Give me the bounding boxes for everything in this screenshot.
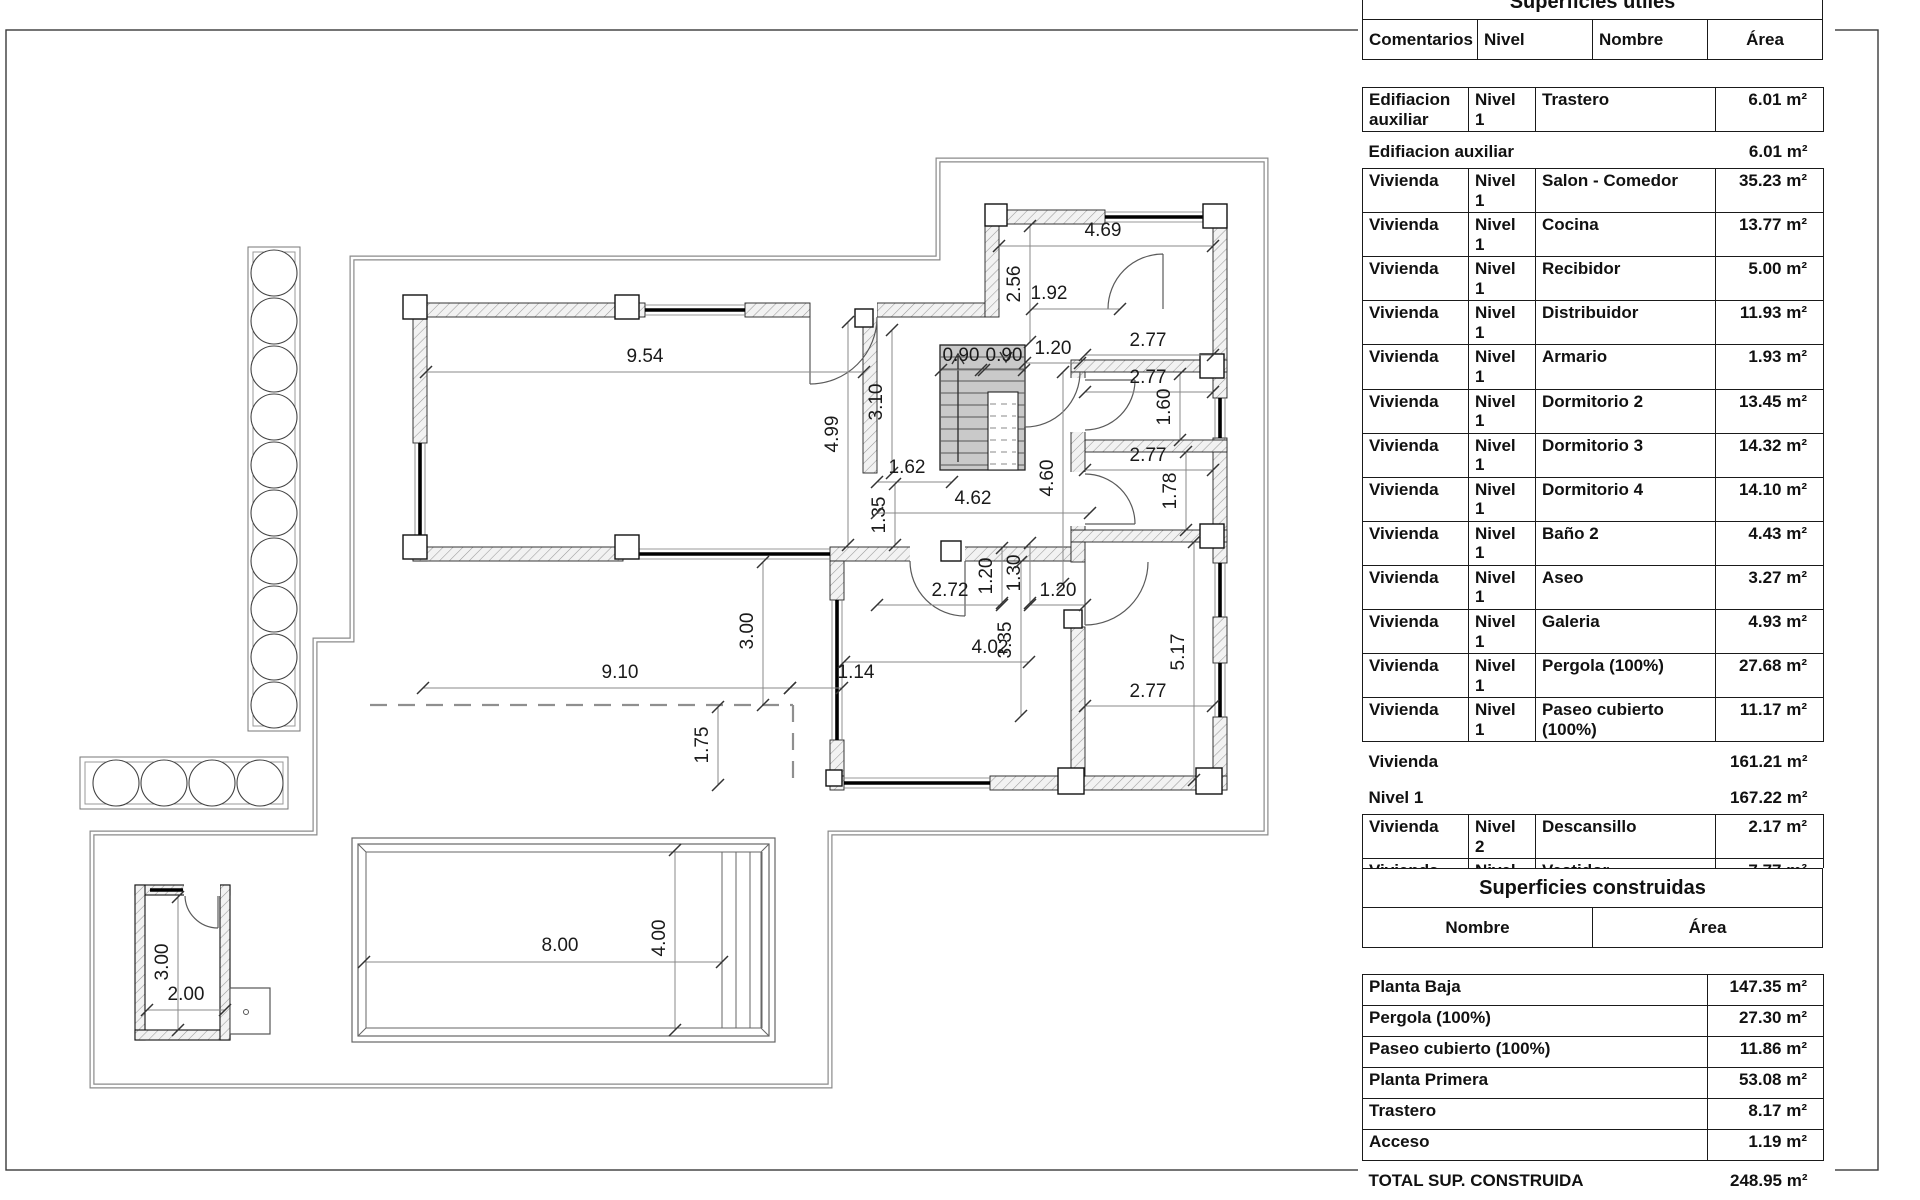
tree xyxy=(189,760,235,806)
table-cell: Dormitorio 4 xyxy=(1536,477,1716,521)
dimension-label: 4.69 xyxy=(1085,220,1122,241)
structural-post xyxy=(615,295,639,319)
table-cell: 2.17 m² xyxy=(1716,815,1824,859)
dimension-label: 3.10 xyxy=(866,384,887,421)
table-cell: 53.08 m² xyxy=(1708,1068,1824,1099)
superficies-utiles-header: Superficies utiles Comentarios Nivel Nom… xyxy=(1362,0,1823,60)
table-cell: Vivienda xyxy=(1363,521,1469,565)
table-row: ViviendaNivel 1Recibidor5.00 m² xyxy=(1363,257,1824,301)
dimension-annotations: 9.544.692.561.920.900.901.203.104.991.62… xyxy=(141,220,1219,1036)
table-cell: Dormitorio 3 xyxy=(1536,433,1716,477)
table-cell: 14.32 m² xyxy=(1716,433,1824,477)
table-cell: Descansillo xyxy=(1536,815,1716,859)
structural-post xyxy=(1058,768,1084,794)
col-header-nombre: Nombre xyxy=(1363,908,1593,948)
door-arc xyxy=(1085,474,1135,524)
table-row: Pergola (100%)27.30 m² xyxy=(1363,1006,1824,1037)
table-cell: 14.10 m² xyxy=(1716,477,1824,521)
dimension-label: 9.10 xyxy=(602,662,639,683)
superficies-construidas-header: Superficies construidas Nombre Área xyxy=(1362,868,1823,948)
table-cell: Vivienda xyxy=(1363,213,1469,257)
table-row: ViviendaNivel 1Baño 24.43 m² xyxy=(1363,521,1824,565)
door-opening xyxy=(1070,472,1086,526)
wall xyxy=(413,547,623,561)
table-row: Vivienda161.21 m² xyxy=(1363,742,1824,779)
structural-post xyxy=(1200,524,1224,548)
table-cell: Planta Baja xyxy=(1363,975,1708,1006)
tree xyxy=(93,760,139,806)
table-cell: 13.45 m² xyxy=(1716,389,1824,433)
dimension-label: 1.75 xyxy=(692,727,713,764)
table-cell: Vivienda xyxy=(1363,742,1716,779)
table-cell: Vivienda xyxy=(1363,389,1469,433)
wall xyxy=(413,303,645,317)
table-cell: Dormitorio 2 xyxy=(1536,389,1716,433)
table-cell: 8.17 m² xyxy=(1708,1099,1824,1130)
table-cell: Acceso xyxy=(1363,1130,1708,1161)
table-cell: Vivienda xyxy=(1363,698,1469,742)
dimension-label: 5.17 xyxy=(1168,634,1189,671)
table-cell: Nivel 1 xyxy=(1469,610,1536,654)
structural-post xyxy=(1200,354,1224,378)
dimension-label: 8.00 xyxy=(542,935,579,956)
tree xyxy=(251,634,297,680)
door-arc xyxy=(1108,254,1163,309)
table-cell: Nivel 1 xyxy=(1469,477,1536,521)
table-cell: 248.95 m² xyxy=(1708,1161,1824,1198)
dimension-label: 1.60 xyxy=(1154,389,1175,426)
table-row: Paseo cubierto (100%)11.86 m² xyxy=(1363,1037,1824,1068)
table-row: ViviendaNivel 1Pergola (100%)27.68 m² xyxy=(1363,654,1824,698)
table-row: ViviendaNivel 1Galeria4.93 m² xyxy=(1363,610,1824,654)
floor-plan-sheet: 9.544.692.561.920.900.901.203.104.991.62… xyxy=(0,0,1920,1200)
superficies-construidas-body: Planta Baja147.35 m²Pergola (100%)27.30 … xyxy=(1362,974,1824,1197)
table-cell: Paseo cubierto (100%) xyxy=(1536,698,1716,742)
table-cell: Vivienda xyxy=(1363,257,1469,301)
structural-post xyxy=(1196,768,1222,794)
table-cell: 5.00 m² xyxy=(1716,257,1824,301)
table-cell: Nivel 1 xyxy=(1469,213,1536,257)
table-cell: Nivel 1 xyxy=(1469,565,1536,609)
table-cell: 1.93 m² xyxy=(1716,345,1824,389)
table-cell: Aseo xyxy=(1536,565,1716,609)
table-cell: Vivienda xyxy=(1363,433,1469,477)
dimension-label: 3.00 xyxy=(152,944,173,981)
table-cell: Vivienda xyxy=(1363,345,1469,389)
table-row: ViviendaNivel 1Armario1.93 m² xyxy=(1363,345,1824,389)
table-cell: 167.22 m² xyxy=(1716,778,1824,815)
tree xyxy=(251,538,297,584)
dimension-label: 2.00 xyxy=(168,984,205,1005)
col-header-nombre: Nombre xyxy=(1593,20,1708,60)
col-header-area: Área xyxy=(1593,908,1823,948)
storage-wall xyxy=(220,885,230,1040)
table-cell: Trastero xyxy=(1363,1099,1708,1130)
col-header-comentarios: Comentarios xyxy=(1363,20,1478,60)
table-cell: Vivienda xyxy=(1363,565,1469,609)
wall xyxy=(1071,627,1085,776)
table-cell: Nivel 1 xyxy=(1469,169,1536,213)
table-cell: Armario xyxy=(1536,345,1716,389)
structural-post xyxy=(855,309,873,327)
dimension-label: 3.00 xyxy=(737,613,758,650)
table-row: ViviendaNivel 1Dormitorio 414.10 m² xyxy=(1363,477,1824,521)
dimension-label: 2.72 xyxy=(932,580,969,601)
table-cell: Galeria xyxy=(1536,610,1716,654)
dimension-label: 2.56 xyxy=(1004,266,1025,303)
terrace-dashed-outline xyxy=(370,705,793,786)
table-cell: 11.93 m² xyxy=(1716,301,1824,345)
table-cell: 11.17 m² xyxy=(1716,698,1824,742)
table-cell: TOTAL SUP. CONSTRUIDA xyxy=(1363,1161,1708,1198)
table-cell: Cocina xyxy=(1536,213,1716,257)
table-row: ViviendaNivel 1Salon - Comedor35.23 m² xyxy=(1363,169,1824,213)
hedge-vertical xyxy=(248,247,300,731)
wall xyxy=(745,303,810,317)
table-cell: 3.27 m² xyxy=(1716,565,1824,609)
door-arc xyxy=(1085,380,1135,430)
table-title: Superficies construidas xyxy=(1363,869,1823,908)
table-cell: Nivel 1 xyxy=(1469,389,1536,433)
dimension-label: 2.77 xyxy=(1130,330,1167,351)
tree xyxy=(251,442,297,488)
table-cell: 4.93 m² xyxy=(1716,610,1824,654)
dimension-label: 2.77 xyxy=(1130,445,1167,466)
pool-steps xyxy=(722,852,762,1028)
table-row: Nivel 1167.22 m² xyxy=(1363,778,1824,815)
table-cell: Recibidor xyxy=(1536,257,1716,301)
table-cell: 27.68 m² xyxy=(1716,654,1824,698)
table-cell: Vivienda xyxy=(1363,610,1469,654)
table-cell: Nivel 1 xyxy=(1469,698,1536,742)
dimension-label: 2.77 xyxy=(1130,681,1167,702)
table-cell: 6.01 m² xyxy=(1716,132,1824,169)
table-cell: Planta Primera xyxy=(1363,1068,1708,1099)
dimension-label: 9.54 xyxy=(627,346,664,367)
structural-post xyxy=(985,204,1007,226)
col-header-area: Área xyxy=(1708,20,1823,60)
access-box xyxy=(230,988,270,1034)
dimension-label: 4.00 xyxy=(649,920,670,957)
table-cell: Vivienda xyxy=(1363,815,1469,859)
table-cell: 27.30 m² xyxy=(1708,1006,1824,1037)
table-cell: Nivel 1 xyxy=(1363,778,1716,815)
table-title: Superficies utiles xyxy=(1363,0,1823,20)
table-row: Edifiacion auxiliarNivel 1Trastero6.01 m… xyxy=(1363,88,1824,132)
tree xyxy=(237,760,283,806)
dimension-label: 1.14 xyxy=(838,662,875,683)
wall xyxy=(1213,617,1227,663)
table-cell: Nivel 1 xyxy=(1469,433,1536,477)
hedge-horizontal xyxy=(80,757,288,809)
table-row: ViviendaNivel 2Descansillo2.17 m² xyxy=(1363,815,1824,859)
table-cell: 4.43 m² xyxy=(1716,521,1824,565)
table-cell: Salon - Comedor xyxy=(1536,169,1716,213)
table-cell: 161.21 m² xyxy=(1716,742,1824,779)
structural-post xyxy=(1064,610,1082,628)
table-title-row: Superficies construidas xyxy=(1363,869,1823,908)
dimension-label: 1.78 xyxy=(1160,473,1181,510)
tree xyxy=(251,346,297,392)
storage-wall xyxy=(135,1030,230,1040)
table-cell: Nivel 1 xyxy=(1469,257,1536,301)
structural-post xyxy=(403,295,427,319)
table-row: ViviendaNivel 1Distribuidor11.93 m² xyxy=(1363,301,1824,345)
table-row: Planta Baja147.35 m² xyxy=(1363,975,1824,1006)
table-cell: Nivel 1 xyxy=(1469,301,1536,345)
table-row: TOTAL SUP. CONSTRUIDA248.95 m² xyxy=(1363,1161,1824,1198)
table-row: Planta Primera53.08 m² xyxy=(1363,1068,1824,1099)
table-cell: 147.35 m² xyxy=(1708,975,1824,1006)
table-cell: Trastero xyxy=(1536,88,1716,132)
table-title-row: Superficies utiles xyxy=(1363,0,1823,20)
tree xyxy=(141,760,187,806)
table-header-row: Comentarios Nivel Nombre Área xyxy=(1363,20,1823,60)
tree xyxy=(251,586,297,632)
storage-wall xyxy=(135,885,145,1040)
table-cell: Nivel 1 xyxy=(1469,654,1536,698)
dimension-label: 1.20 xyxy=(976,558,997,595)
tree xyxy=(251,490,297,536)
door-arc xyxy=(185,895,218,928)
table-cell: Vivienda xyxy=(1363,654,1469,698)
table-row: ViviendaNivel 1Cocina13.77 m² xyxy=(1363,213,1824,257)
table-cell: Edifiacion auxiliar xyxy=(1363,88,1469,132)
structural-post xyxy=(941,541,961,561)
dimension-label: 2.77 xyxy=(1130,367,1167,388)
table-cell: 1.19 m² xyxy=(1708,1130,1824,1161)
structural-post xyxy=(403,535,427,559)
table-cell: Edifiacion auxiliar xyxy=(1363,132,1716,169)
wall xyxy=(1071,542,1085,562)
table-cell: Nivel 1 xyxy=(1469,345,1536,389)
table-cell: 13.77 m² xyxy=(1716,213,1824,257)
wall xyxy=(985,224,999,317)
table-header-row: Nombre Área xyxy=(1363,908,1823,948)
table-cell: Nivel 2 xyxy=(1469,815,1536,859)
dimension-label: 1.62 xyxy=(889,457,926,478)
table-row: ViviendaNivel 1Aseo3.27 m² xyxy=(1363,565,1824,609)
table-cell: 11.86 m² xyxy=(1708,1037,1824,1068)
tree xyxy=(251,682,297,728)
table-cell: Baño 2 xyxy=(1536,521,1716,565)
dimension-label: 1.92 xyxy=(1031,283,1068,304)
table-cell: Nivel 1 xyxy=(1469,521,1536,565)
dimension-label: 0.90 xyxy=(943,345,980,366)
table-row: ViviendaNivel 1Dormitorio 213.45 m² xyxy=(1363,389,1824,433)
dimension-label: 1.20 xyxy=(1040,580,1077,601)
table-cell: Vivienda xyxy=(1363,477,1469,521)
dimension-label: 1.30 xyxy=(1004,555,1025,592)
dimension-label: 1.35 xyxy=(869,497,890,534)
table-row: Edifiacion auxiliar6.01 m² xyxy=(1363,132,1824,169)
dimension-label: 4.60 xyxy=(1037,460,1058,497)
tree xyxy=(251,394,297,440)
table-row: Acceso1.19 m² xyxy=(1363,1130,1824,1161)
tree xyxy=(251,250,297,296)
dimension-label: 4.99 xyxy=(822,416,843,453)
structural-post xyxy=(826,770,842,786)
structural-post xyxy=(1203,204,1227,228)
table-row: ViviendaNivel 1Paseo cubierto (100%)11.1… xyxy=(1363,698,1824,742)
table-cell: Vivienda xyxy=(1363,169,1469,213)
dimension-label: 0.90 xyxy=(986,345,1023,366)
wall xyxy=(877,303,985,317)
wall xyxy=(830,561,844,600)
structural-post xyxy=(615,535,639,559)
table-cell: 6.01 m² xyxy=(1716,88,1824,132)
col-header-nivel: Nivel xyxy=(1478,20,1593,60)
table-cell: Nivel 1 xyxy=(1469,88,1536,132)
dimension-label: 4.62 xyxy=(955,488,992,509)
dimension-label: 1.20 xyxy=(1035,338,1072,359)
table-cell: 35.23 m² xyxy=(1716,169,1824,213)
table-cell: Paseo cubierto (100%) xyxy=(1363,1037,1708,1068)
tree xyxy=(251,298,297,344)
door-arc xyxy=(1085,562,1148,625)
table-cell: Pergola (100%) xyxy=(1536,654,1716,698)
table-cell: Pergola (100%) xyxy=(1363,1006,1708,1037)
table-row: ViviendaNivel 1Dormitorio 314.32 m² xyxy=(1363,433,1824,477)
table-cell: Distribuidor xyxy=(1536,301,1716,345)
table-superficies-construidas: Superficies construidas Nombre Área Plan… xyxy=(1358,868,1835,1197)
table-row: Trastero8.17 m² xyxy=(1363,1099,1824,1130)
storage-door-opening xyxy=(184,884,220,896)
table-cell: Vivienda xyxy=(1363,301,1469,345)
dimension-label: 3.35 xyxy=(995,622,1016,659)
